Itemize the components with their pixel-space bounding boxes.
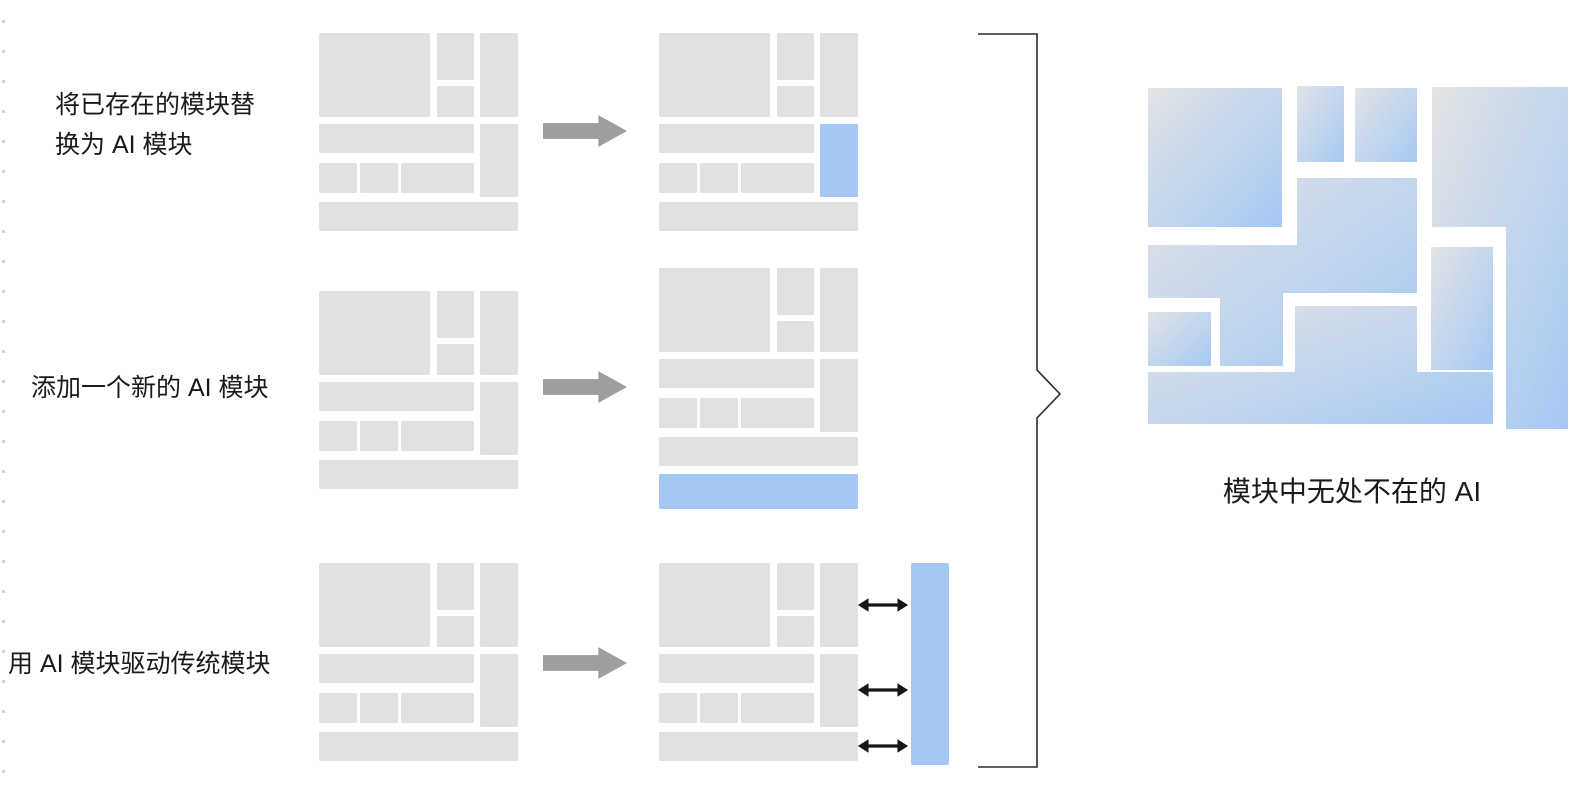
double-arrow-icon [856,595,910,615]
module-block [319,563,430,647]
module-before-row1 [319,33,519,231]
module-block [777,268,814,315]
row-label-line: 换为 AI 模块 [55,125,255,165]
module-block [480,33,518,117]
module-block [777,616,814,647]
module-block [437,86,474,117]
module-block [319,202,518,231]
module-block [777,563,814,610]
result-label: 模块中无处不在的 AI [1132,472,1572,512]
module-block [659,437,858,466]
right-arrow-icon [543,370,628,404]
module-block [659,124,814,153]
module-after-row3 [659,563,859,761]
module-block [360,163,398,193]
module-block [820,654,858,727]
module-block [659,563,770,647]
module-block [360,421,398,451]
row-label-replace-module: 将已存在的模块替 换为 AI 模块 [55,85,255,165]
module-block [437,33,474,80]
curly-brace-icon [968,25,1068,775]
module-block [437,563,474,610]
module-block [319,693,357,723]
mosaic-block [1297,86,1344,162]
right-arrow-icon [543,646,628,680]
module-block [480,291,518,375]
module-block [319,421,357,451]
module-block [659,202,858,231]
module-block [319,33,430,117]
module-block [401,163,474,193]
module-block [659,359,814,388]
module-block [659,163,697,193]
module-block [319,654,474,683]
module-block [401,421,474,451]
module-block [480,382,518,455]
module-block [741,398,814,428]
module-block [659,654,814,683]
right-arrow-icon [543,114,628,148]
mosaic-block [1355,88,1417,162]
row-label-drive-module: 用 AI 模块驱动传统模块 [8,644,271,684]
double-arrow-icon [856,736,910,756]
module-block [777,86,814,117]
module-block [820,33,858,117]
module-block [319,732,518,761]
module-block [777,321,814,352]
module-block [360,693,398,723]
module-block [700,398,738,428]
module-block [820,359,858,432]
module-block [820,563,858,647]
ai-module-block [820,124,858,197]
mosaic-block [1148,312,1211,366]
module-before-row3 [319,563,519,761]
module-block [480,124,518,197]
module-block [480,563,518,647]
ai-driver-bar [911,563,949,765]
module-block [700,693,738,723]
module-block [437,616,474,647]
module-block [659,732,858,761]
mosaic-block [1148,88,1282,227]
module-block [319,124,474,153]
module-block [319,291,430,375]
row-label-line: 添加一个新的 AI 模块 [31,368,269,408]
module-block [777,33,814,80]
row-label-line: 用 AI 模块驱动传统模块 [8,644,271,684]
module-block [401,693,474,723]
module-after-row2 [659,268,859,466]
ai-module-diagram: 将已存在的模块替 换为 AI 模块 添加一个新的 AI 模块 用 AI 模块驱动… [0,0,1588,802]
module-before-row2 [319,291,519,489]
module-block [437,291,474,338]
module-block [659,268,770,352]
module-block [319,163,357,193]
ai-mosaic-diagram [1132,84,1572,434]
module-after-row1 [659,33,859,231]
module-block [700,163,738,193]
module-block [659,398,697,428]
left-edge-dash-guides [2,20,5,778]
module-block [319,460,518,489]
module-block [480,654,518,727]
module-block [659,33,770,117]
mosaic-block [1431,247,1493,370]
row-label-add-module: 添加一个新的 AI 模块 [31,368,269,408]
row-label-line: 将已存在的模块替 [55,85,255,125]
ai-module-block [659,474,858,509]
module-block [319,382,474,411]
double-arrow-icon [856,680,910,700]
module-block [437,344,474,375]
module-block [741,693,814,723]
module-block [820,268,858,352]
module-block [659,693,697,723]
module-block [741,163,814,193]
